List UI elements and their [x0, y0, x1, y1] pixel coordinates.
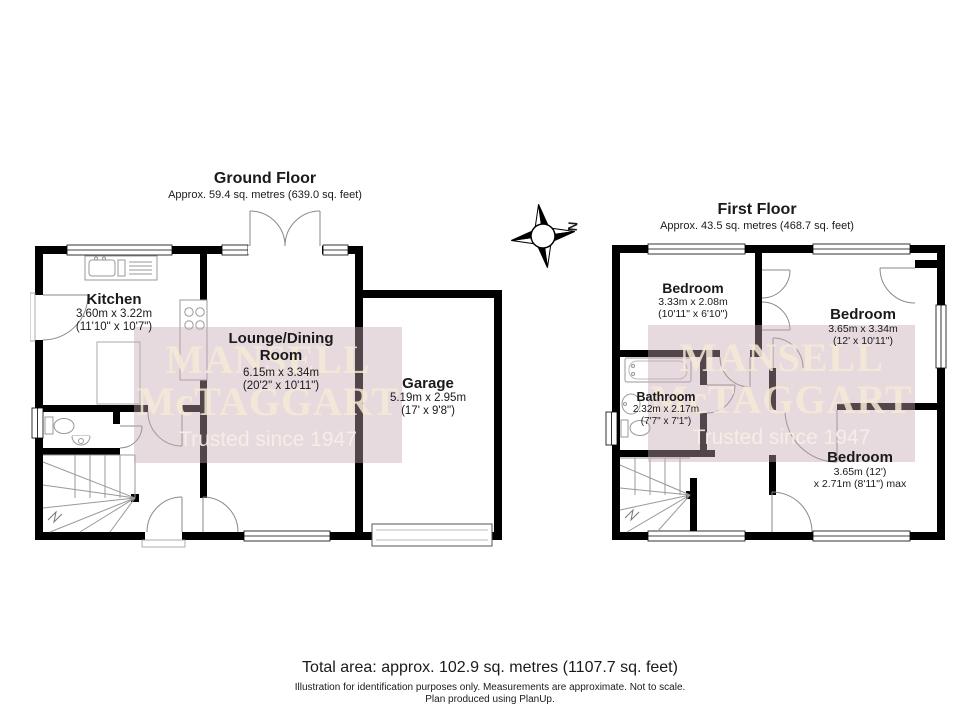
room-dims-metric: 2.32m x 2.17m [633, 404, 699, 416]
kitchen-counter [97, 342, 140, 404]
room-dims-metric: 3.33m x 2.08m [658, 296, 728, 308]
room-dims-imperial: (17' x 9'8") [390, 405, 466, 418]
room-label-bedroom-3: Bedroom 3.65m (12') x 2.71m (8'11") max [814, 449, 907, 490]
room-label-kitchen: Kitchen 3.60m x 3.22m (11'10" x 10'7") [76, 291, 152, 335]
room-dims-metric: 3.65m (12') [814, 466, 907, 478]
room-dims-metric: 3.65m x 3.34m [828, 323, 897, 335]
first-floor-title: First Floor [717, 201, 796, 219]
wc-toilet-icon [45, 417, 74, 434]
kitchen-sink-icon [85, 256, 157, 280]
french-doors [248, 211, 322, 254]
first-stairs-icon [620, 458, 690, 532]
room-dims-imperial: (10'11" x 6'10") [658, 308, 728, 320]
wc-basin-icon [72, 436, 90, 445]
room-dims-metric: 3.60m x 3.22m [76, 308, 152, 321]
room-label-garage: Garage 5.19m x 2.95m (17' x 9'8") [390, 375, 466, 419]
room-label-bathroom: Bathroom 2.32m x 2.17m (7'7" x 7'1") [633, 390, 699, 427]
room-dims-imperial: (11'10" x 10'7") [76, 321, 152, 334]
room-dims-imperial: x 2.71m (8'11") max [814, 478, 907, 490]
first-floor-subtitle: Approx. 43.5 sq. metres (468.7 sq. feet) [660, 220, 854, 232]
room-dims-imperial: (7'7" x 7'1") [633, 416, 699, 428]
room-label-bedroom-1: Bedroom 3.33m x 2.08m (10'11" x 6'10") [658, 280, 728, 320]
room-label-bedroom-2: Bedroom 3.65m x 3.34m (12' x 10'11") [828, 306, 897, 347]
floorplan-page: N MANSELL McTAGGART Trusted since 1947 M… [0, 0, 980, 712]
bathtub-icon [625, 358, 691, 382]
ground-stairs-icon [43, 455, 135, 532]
room-name: Bedroom [658, 280, 728, 296]
room-label-lounge-dining: Lounge/Dining Room 6.15m x 3.34m (20'2" … [206, 330, 356, 393]
ground-floor-title: Ground Floor [214, 170, 316, 188]
north-label: N [568, 218, 577, 236]
hob-icon [180, 300, 207, 380]
credit-text: Plan produced using PlanUp. [425, 694, 555, 705]
ground-floor-subtitle: Approx. 59.4 sq. metres (639.0 sq. feet) [168, 189, 362, 201]
room-name: Lounge/Dining Room [206, 330, 356, 365]
ground-windows [32, 245, 348, 541]
room-name: Kitchen [76, 291, 152, 308]
first-floor-plan [605, 200, 960, 550]
room-dims-imperial: (20'2" x 10'11") [206, 380, 356, 393]
compass-icon [503, 196, 583, 276]
room-dims-imperial: (12' x 10'11") [828, 335, 897, 347]
room-dims-metric: 5.19m x 2.95m [390, 392, 466, 405]
room-name: Bedroom [814, 449, 907, 466]
garage-door [372, 524, 492, 546]
room-dims-metric: 6.15m x 3.34m [206, 367, 356, 380]
room-name: Bathroom [633, 390, 699, 404]
room-name: Bedroom [828, 306, 897, 323]
room-name: Garage [390, 375, 466, 392]
disclaimer-text: Illustration for identification purposes… [295, 682, 686, 693]
total-area-text: Total area: approx. 102.9 sq. metres (11… [302, 659, 678, 677]
